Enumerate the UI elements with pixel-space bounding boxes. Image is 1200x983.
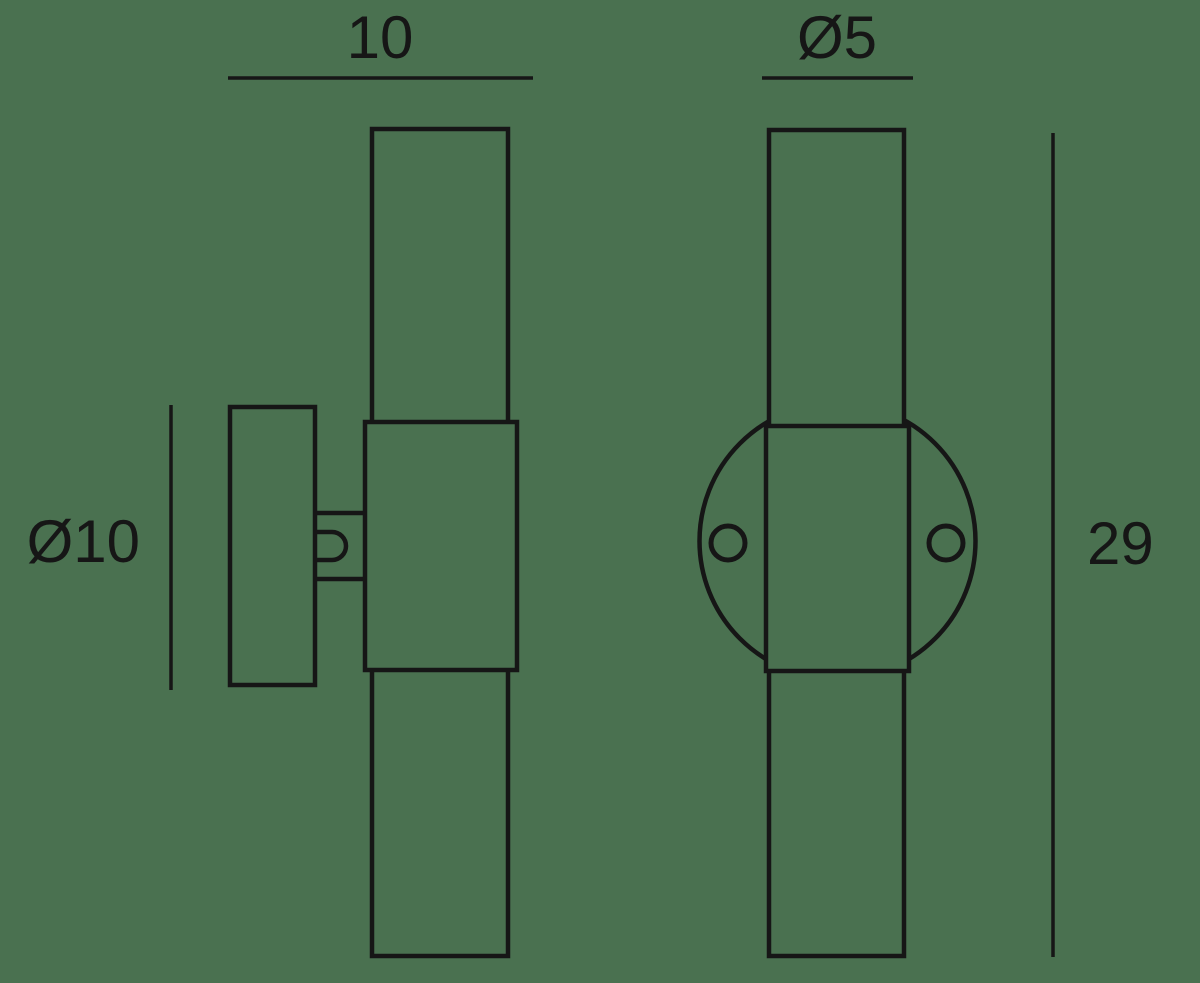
front-view-body — [766, 426, 909, 671]
drawing-canvas: 10 Ø5 Ø10 29 — [0, 0, 1200, 983]
dimension-annotations: 10 Ø5 Ø10 29 — [27, 4, 1154, 957]
side-view-upper-tube — [372, 129, 508, 422]
dimension-label-tube-diameter: Ø5 — [797, 4, 877, 71]
dimension-label-plate-diameter: Ø10 — [27, 508, 140, 575]
dimension-label-overall-height: 29 — [1087, 510, 1154, 577]
technical-drawing: 10 Ø5 Ø10 29 — [0, 0, 1200, 983]
front-view-screw-hole-left — [711, 526, 745, 560]
dimension-label-top-width: 10 — [347, 4, 414, 71]
front-view-lower-tube — [769, 671, 904, 956]
side-view-wall-plate — [230, 407, 315, 685]
side-view-lower-tube — [372, 670, 508, 956]
front-view — [700, 130, 976, 956]
front-view-screw-hole-right — [929, 526, 963, 560]
front-view-upper-tube — [769, 130, 904, 426]
side-view-cable-gland-detail — [313, 532, 346, 560]
side-view — [230, 129, 517, 956]
side-view-body — [365, 422, 517, 670]
